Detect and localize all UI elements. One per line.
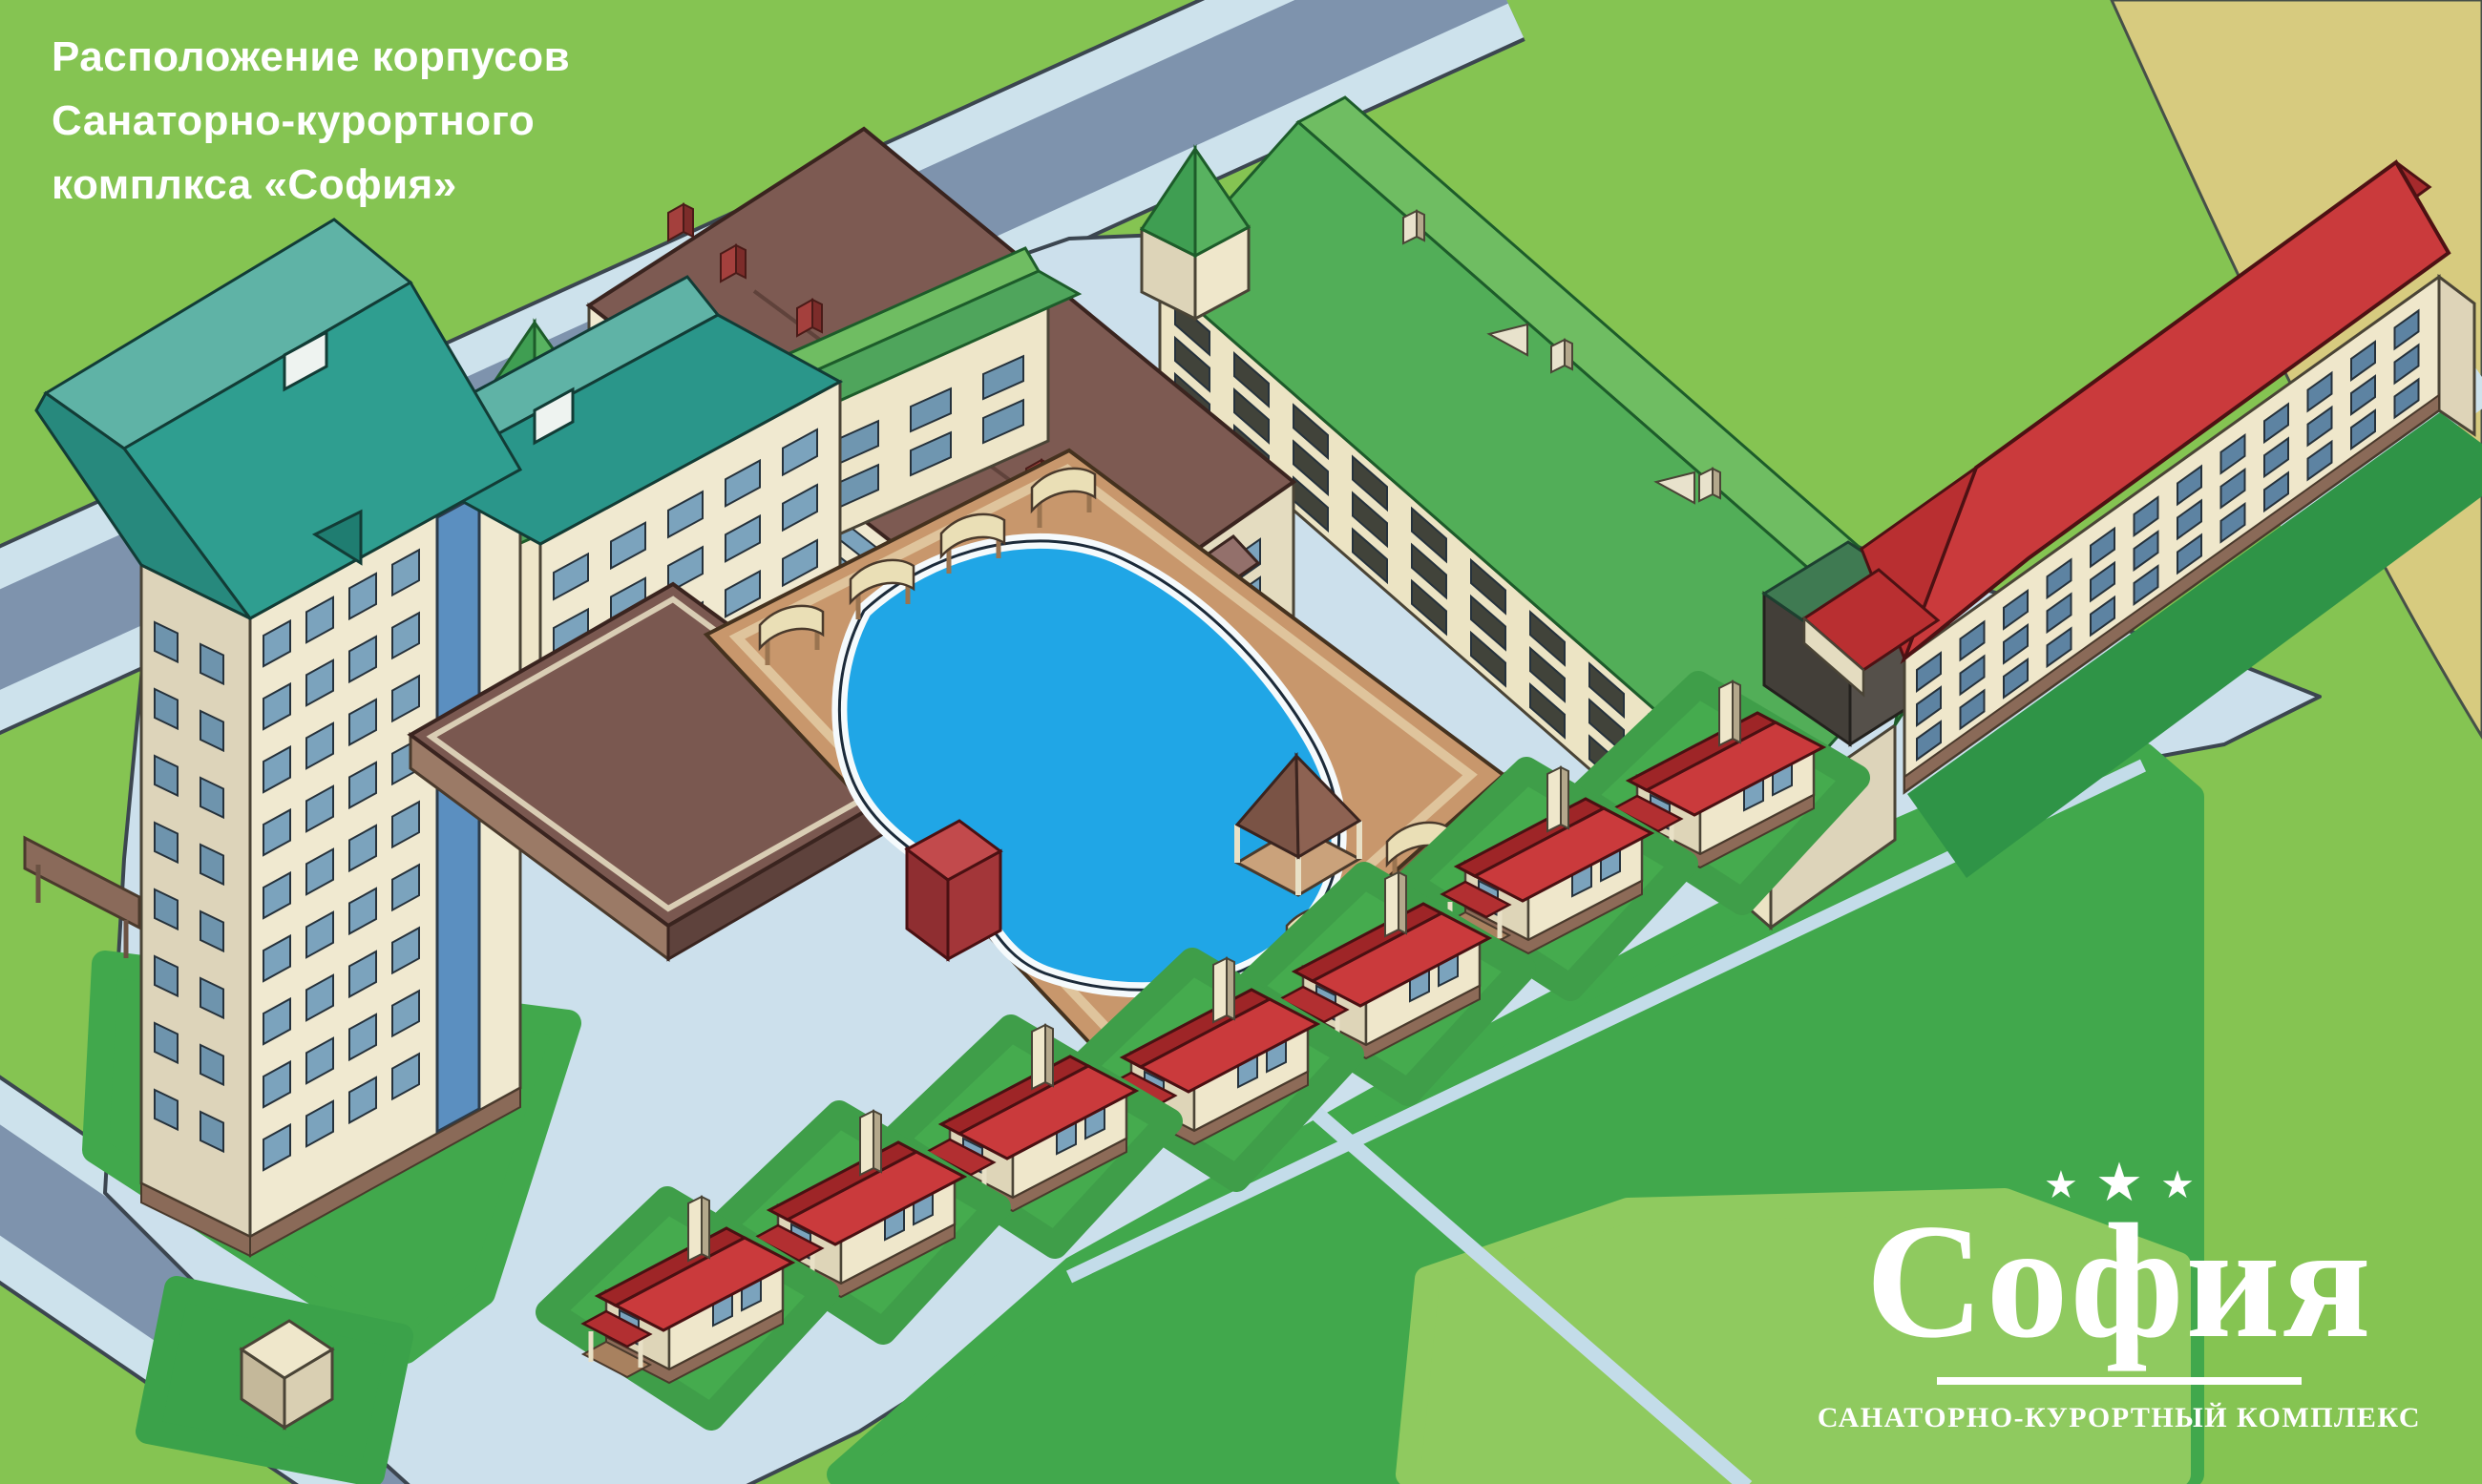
pool-kiosk [907,821,1000,959]
utility-shed [148,1288,401,1474]
page-title: Расположение корпусов Санаторно-курортно… [52,25,570,217]
logo-divider [1937,1377,2302,1385]
roof-vent-icon [1551,340,1572,372]
title-line-2: Санаторно-курортного [52,89,570,153]
roof-vent-icon [1403,211,1424,243]
site-plan-page: Расположение корпусов Санаторно-курортно… [0,0,2482,1484]
title-line-3: комплкса «София» [52,153,570,217]
brand-logo: ★ ★ ★ София САНАТОРНО-КУРОРТНЫЙ КОМПЛЕКС [1785,1143,2453,1434]
star-icon: ★ [2095,1157,2143,1210]
logo-subtitle: САНАТОРНО-КУРОРТНЫЙ КОМПЛЕКС [1785,1402,2453,1434]
logo-name: София [1785,1199,2453,1366]
title-line-1: Расположение корпусов [52,25,570,89]
roof-vent-icon [1699,469,1720,501]
